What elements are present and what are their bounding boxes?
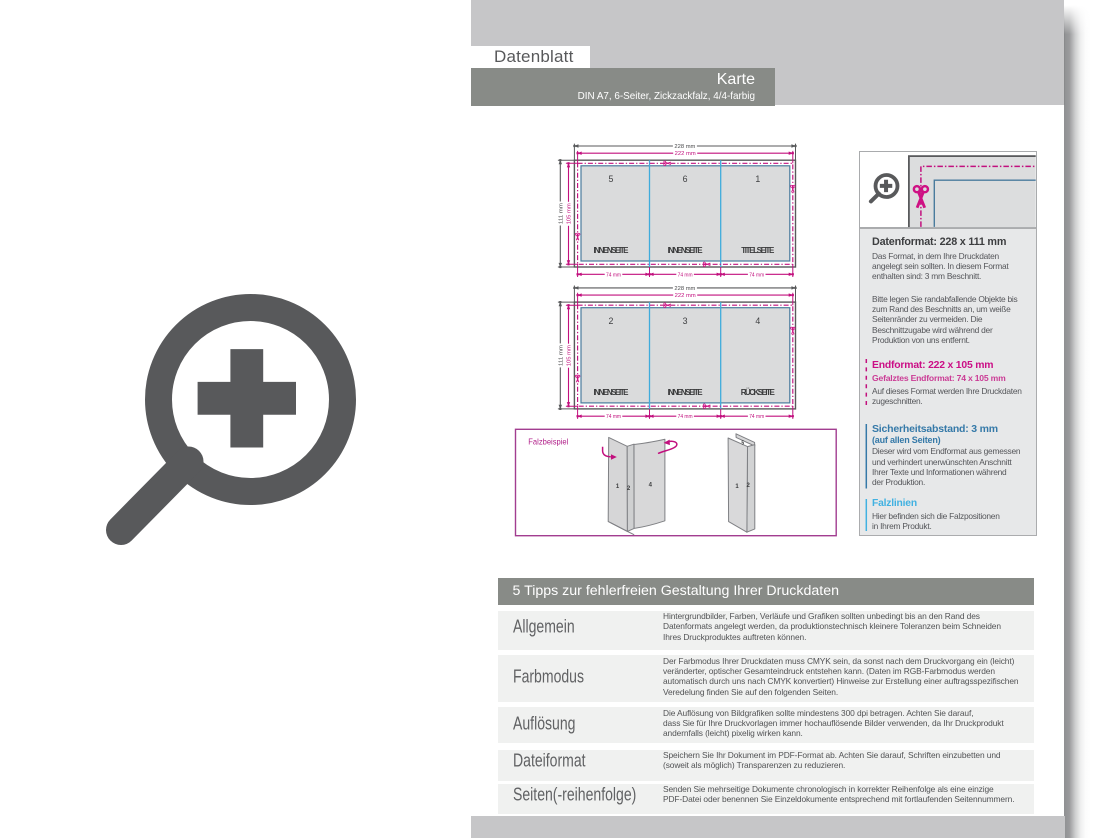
svg-text:5: 5 [609, 174, 614, 184]
svg-text:INNENSEITE: INNENSEITE [668, 388, 704, 397]
svg-text:5: 5 [741, 441, 744, 447]
svg-text:TITELSEITE: TITELSEITE [741, 246, 775, 255]
svg-text:INNENSEITE: INNENSEITE [594, 246, 630, 255]
svg-text:4: 4 [755, 316, 760, 326]
svg-text:INNENSEITE: INNENSEITE [594, 388, 630, 397]
svg-text:INNENSEITE: INNENSEITE [668, 246, 704, 255]
svg-text:3: 3 [683, 316, 688, 326]
svg-text:2: 2 [609, 316, 614, 326]
svg-text:1: 1 [755, 174, 760, 184]
svg-text:6: 6 [683, 174, 688, 184]
svg-text:Falzbeispiel: Falzbeispiel [528, 437, 568, 447]
svg-text:RÜCKSEITE: RÜCKSEITE [741, 388, 776, 397]
